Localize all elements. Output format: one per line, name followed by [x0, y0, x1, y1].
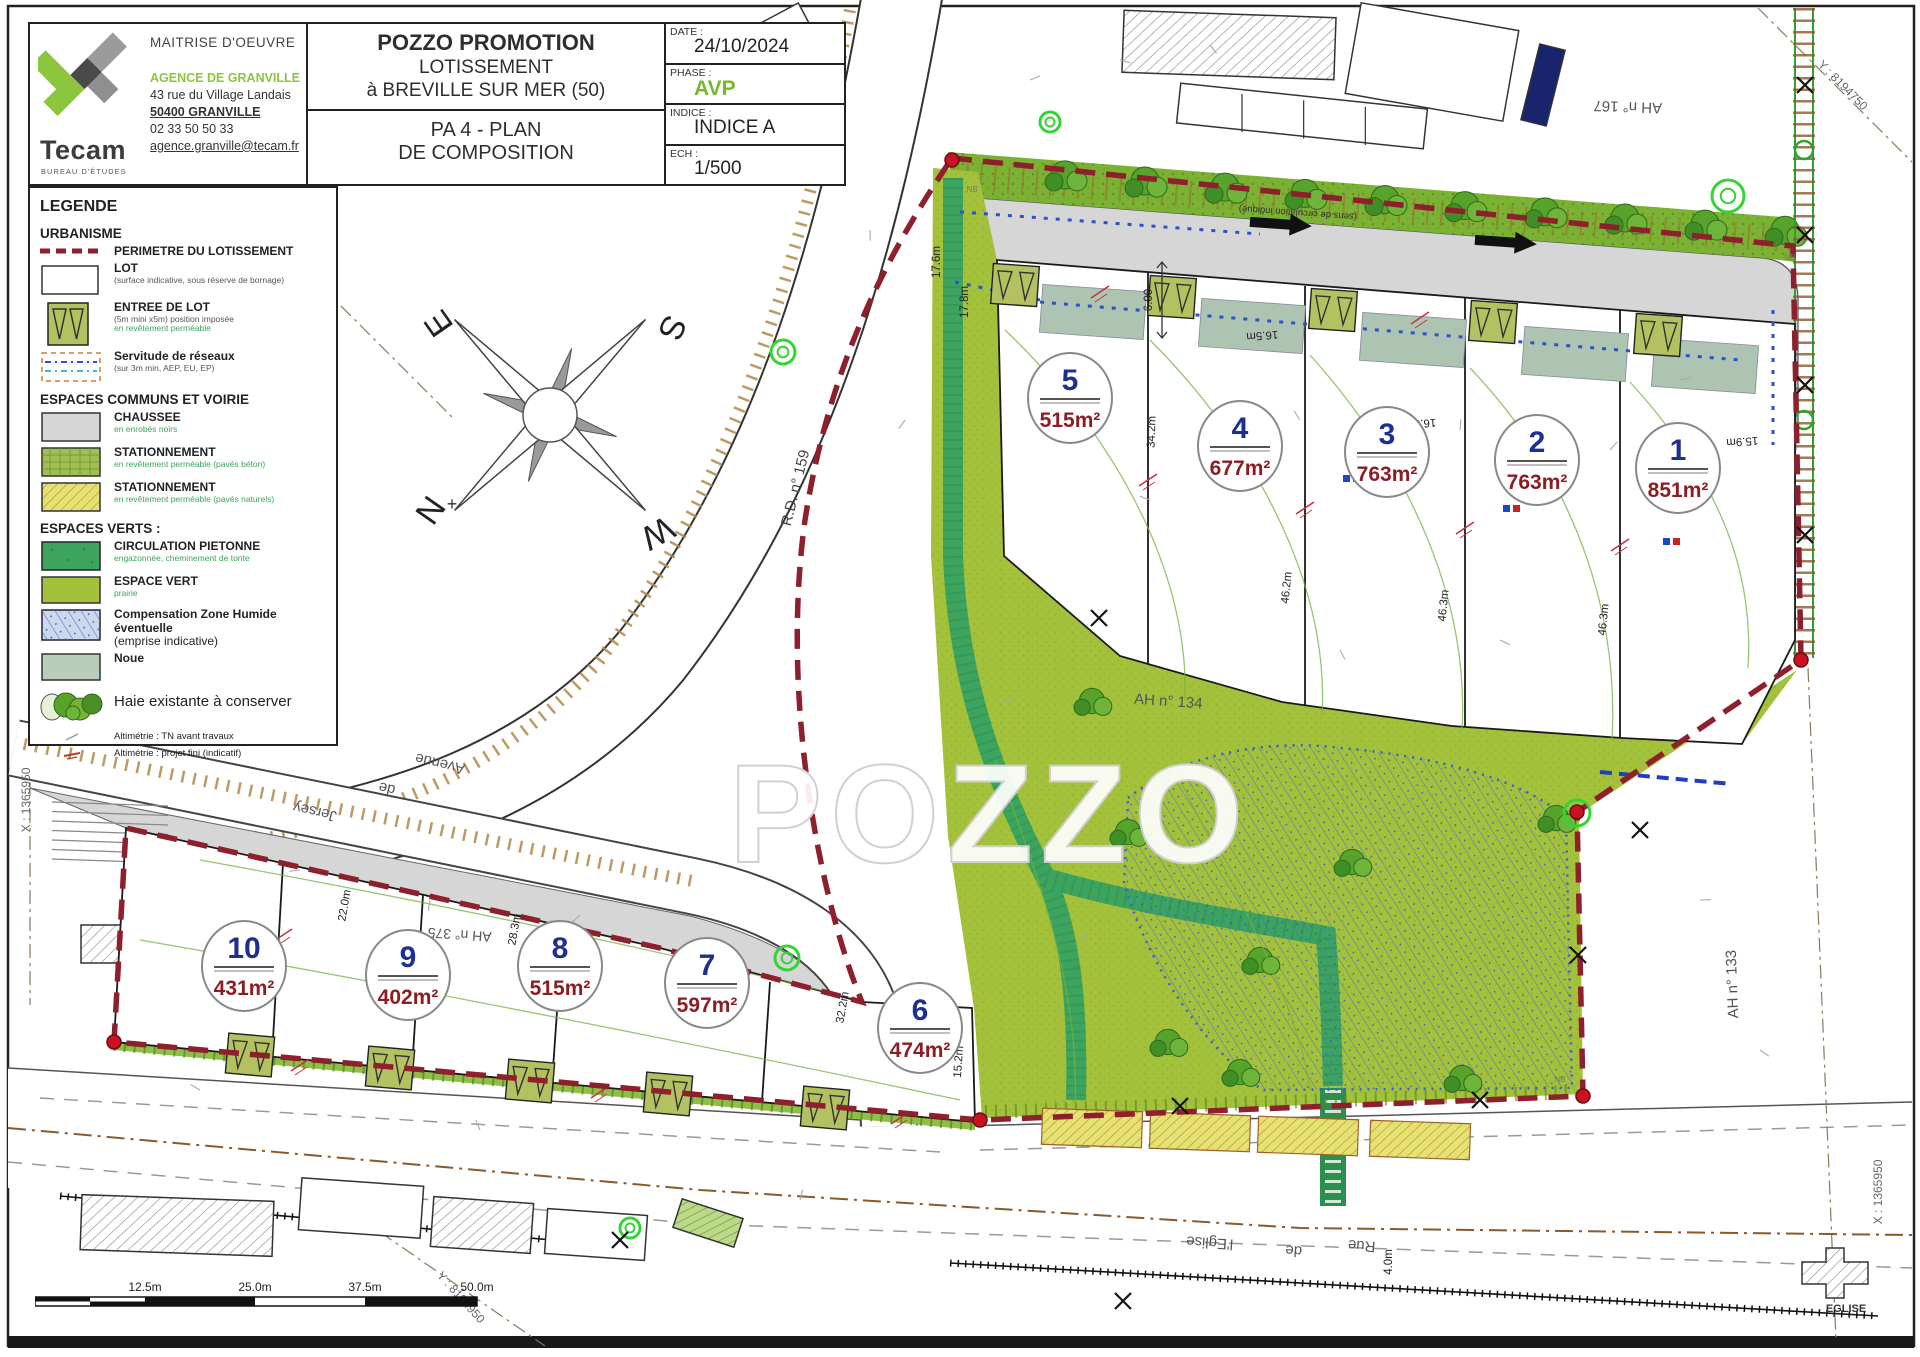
alti-tn-swatch-icon [40, 730, 104, 744]
entree-swatch-icon [40, 301, 104, 347]
legend-item-noue: Noue [40, 652, 326, 682]
map-text-label: 6.00 [1143, 289, 1155, 311]
stationnement-beton-swatch-icon [40, 446, 104, 478]
field-echelle: ECH : 1/500 [666, 146, 844, 185]
title-block-meta-cell: DATE : 24/10/2024 PHASE : AVP INDICE : I… [666, 24, 844, 184]
map-text-label: 17.8m [959, 286, 971, 318]
lot-area: 763m² [1507, 471, 1568, 494]
legend-item-espace-vert: ESPACE VERTprairie [40, 575, 326, 605]
legend-item-alti-projet: Altimétrie : projet fini (indicatif) [40, 747, 326, 761]
plan-sheet: 17.8m17.6m34.2m46.2m46.3m46.3m22.0m28.3m… [0, 0, 1920, 1357]
logo-subtitle: BUREAU D'ÉTUDES [41, 167, 127, 176]
lot-number: 10 [227, 932, 260, 965]
legend-item-chaussee: CHAUSSEEen enrobés noirs [40, 411, 326, 443]
client-name: POZZO PROMOTION [308, 30, 664, 56]
lot-area: 515m² [1040, 409, 1101, 432]
chaussee-swatch-icon [40, 411, 104, 443]
map-text-label: 17.6m [931, 246, 943, 278]
map-text-label: 34.2m [1145, 416, 1158, 448]
perimeter-swatch-icon [40, 245, 104, 257]
entree-de-lot-icon [991, 263, 1040, 306]
lot-area: 763m² [1357, 463, 1418, 486]
lot-number: 4 [1232, 412, 1249, 445]
lot-label: 10431m² [202, 921, 286, 1011]
legend-item-zone-humide: Compensation Zone Humide éventuelle(empr… [40, 608, 326, 649]
lot-area: 474m² [890, 1039, 951, 1062]
servitude-swatch-icon [40, 350, 104, 384]
map-text-label: X : 1365950 [1871, 1159, 1885, 1224]
map-text-label: 15.9m [1726, 434, 1759, 448]
tecam-logo: Tecam BUREAU D'ÉTUDES [38, 30, 144, 180]
map-text-label: X : 1365950 [19, 767, 33, 832]
legend-item-perimetre: PERIMETRE DU LOTISSEMENT [40, 245, 326, 259]
legend-item-alti-tn: Altimétrie : TN avant travaux [40, 730, 326, 744]
legend-item-entree: ENTREE DE LOT(5m mini x5m) position impo… [40, 301, 326, 347]
lot-number: 1 [1670, 434, 1687, 467]
scale-bar-graphic [35, 1295, 505, 1309]
lot-number: 6 [912, 994, 929, 1027]
lot-label: 1851m² [1636, 423, 1720, 513]
map-text-label: l'Eglise [1186, 1232, 1234, 1252]
legend-heading-urbanisme: URBANISME [40, 226, 326, 241]
phase-value: AVP [694, 77, 840, 101]
alti-projet-swatch-icon [40, 747, 104, 761]
pietonne-swatch-icon [40, 540, 104, 572]
scale-label-12: 12.5m [128, 1280, 161, 1294]
legend-item-stationnement-beton: STATIONNEMENTen revêtement perméable (pa… [40, 446, 326, 478]
legend-heading-espaces-communs: ESPACES COMMUNS ET VOIRIE [40, 392, 326, 407]
entree-de-lot-icon [1309, 288, 1358, 331]
lot-number: 2 [1529, 426, 1546, 459]
legend-item-servitude: Servitude de réseaux(sur 3m min, AEP, EU… [40, 350, 326, 384]
date-value: 24/10/2024 [694, 36, 840, 58]
lot-number: 5 [1062, 364, 1079, 397]
noue-swatch-icon [40, 652, 104, 682]
lot-number: 7 [699, 949, 716, 982]
map-text-label: NB [1554, 1075, 1565, 1084]
scale-label-25: 25.0m [238, 1280, 271, 1294]
stationnement-naturel-swatch-icon [40, 481, 104, 513]
doc-title-line2: DE COMPOSITION [308, 142, 664, 165]
project-line1: LOTISSEMENT [308, 57, 664, 79]
map-text-label: NB [1784, 253, 1795, 262]
scale-label-50: 50.0m [460, 1280, 493, 1294]
map-text-label: AH n° 133 [1723, 950, 1742, 1019]
lot-number: 3 [1379, 418, 1396, 451]
entree-de-lot-icon [1634, 313, 1683, 356]
grid-cross: + [447, 494, 458, 514]
legend-item-haie: Haie existante à conserver [40, 685, 326, 727]
agency-phone: 02 33 50 50 33 [150, 121, 302, 138]
lot-label: 9402m² [366, 930, 450, 1020]
lot-label: 6474m² [878, 983, 962, 1073]
lot-label: 2763m² [1495, 415, 1579, 505]
indice-value: INDICE A [694, 117, 840, 139]
zone-humide-swatch-icon [40, 608, 104, 642]
lot-area: 402m² [378, 986, 439, 1009]
lot-label: 4677m² [1198, 401, 1282, 491]
field-indice: INDICE : INDICE A [666, 105, 844, 146]
sheet-bottom-bar [8, 1336, 1914, 1348]
doc-title-line1: PA 4 - PLAN [308, 119, 664, 142]
agency-name: AGENCE DE GRANVILLE [150, 70, 302, 87]
map-text-label: EGLISE [1826, 1303, 1866, 1315]
field-phase: PHASE : AVP [666, 65, 844, 106]
legend-box: LEGENDE URBANISME PERIMETRE DU LOTISSEME… [28, 186, 338, 746]
legend-title: LEGENDE [40, 198, 326, 216]
legend-heading-espaces-verts: ESPACES VERTS : [40, 521, 326, 536]
title-block-project-cell: POZZO PROMOTION LOTISSEMENT à BREVILLE S… [308, 24, 666, 184]
legend-item-lot: LOT(surface indicative, sous réserve de … [40, 262, 326, 298]
lot-number: 9 [400, 941, 417, 974]
field-date: DATE : 24/10/2024 [666, 24, 844, 65]
lot-label: 5515m² [1028, 353, 1112, 443]
pozzo-watermark: POZZO [729, 735, 1251, 892]
echelle-value: 1/500 [694, 158, 840, 180]
map-text-label: 16.5m [1246, 328, 1279, 342]
lot-area: 515m² [530, 977, 591, 1000]
map-text-label: NB [966, 185, 977, 194]
project-line2: à BREVILLE SUR MER (50) [308, 80, 664, 102]
lot-area: 851m² [1648, 479, 1709, 502]
title-block-author-cell: Tecam BUREAU D'ÉTUDES MAITRISE D'OEUVRE … [30, 24, 308, 184]
map-text-label: Rue [1347, 1236, 1376, 1255]
entree-de-lot-icon [1469, 300, 1518, 343]
legend-item-pietonne: CIRCULATION PIETONNEengazonnée, cheminem… [40, 540, 326, 572]
map-text-label: AH n° 167 [1593, 97, 1662, 116]
haie-swatch-icon [40, 685, 104, 727]
legend-item-stationnement-naturel: STATIONNEMENTen revêtement perméable (pa… [40, 481, 326, 513]
lot-swatch-icon [40, 262, 104, 298]
agency-address: 43 rue du Village Landais [150, 87, 302, 104]
map-text-label: 4.0m [1383, 1249, 1395, 1275]
tecam-logo-icon [38, 30, 138, 142]
lot-area: 597m² [677, 994, 738, 1017]
title-block: Tecam BUREAU D'ÉTUDES MAITRISE D'OEUVRE … [28, 22, 846, 186]
logo-wordmark: Tecam [40, 135, 126, 166]
map-text-label: de [1285, 1241, 1303, 1259]
scale-label-37: 37.5m [348, 1280, 381, 1294]
scale-bar: 12.5m 25.0m 37.5m 50.0m [35, 1280, 505, 1310]
lot-number: 8 [552, 932, 569, 965]
agency-email: agence.granville@tecam.fr [150, 138, 302, 155]
maitrise-oeuvre-label: MAITRISE D'OEUVRE [150, 34, 302, 52]
lot-label: 3763m² [1345, 407, 1429, 497]
lot-area: 677m² [1210, 457, 1271, 480]
lot-label: 8515m² [518, 921, 602, 1011]
agency-city: 50400 GRANVILLE [150, 104, 302, 121]
lot-label: 7597m² [665, 938, 749, 1028]
lot-area: 431m² [214, 977, 275, 1000]
espace-vert-swatch-icon [40, 575, 104, 605]
